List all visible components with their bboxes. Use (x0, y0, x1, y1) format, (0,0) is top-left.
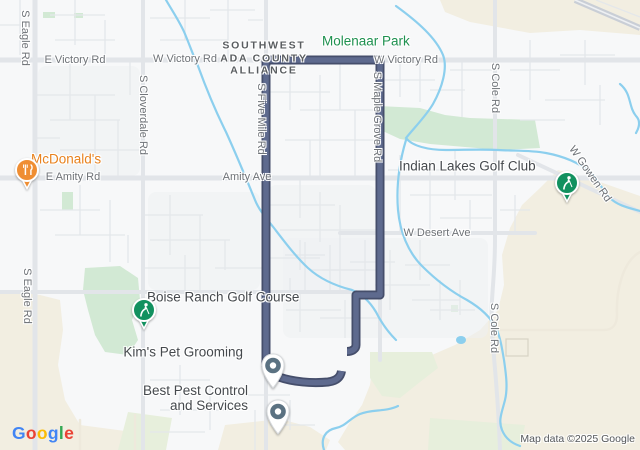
map-layers (0, 0, 640, 450)
road-label-amity-ave: Amity Ave (223, 171, 272, 183)
street-grid (270, 60, 377, 178)
poi-label-boise-ranch-golf-course[interactable]: Boise Ranch Golf Course (147, 290, 299, 305)
park-area (376, 106, 540, 150)
park-area (62, 192, 73, 210)
map-attribution: Map data ©2025 Google (520, 433, 635, 445)
road-label-s-maple-grove-rd: S Maple Grove Rd (371, 72, 383, 162)
golfer-icon (130, 297, 158, 331)
logo-letter: o (26, 423, 37, 443)
road-label-e-amity-rd: E Amity Rd (46, 171, 100, 183)
map-canvas[interactable]: E Victory Rd W Victory Rd W Victory Rd S… (0, 0, 640, 450)
road-label-s-eagle-rd-2: S Eagle Rd (21, 268, 33, 324)
residential-area (148, 192, 260, 290)
pond (456, 336, 466, 344)
road-label-e-victory-rd: E Victory Rd (45, 54, 106, 66)
alliance-line-1: SOUTHWEST (220, 39, 308, 52)
poi-label-indian-lakes-golf-club[interactable]: Indian Lakes Golf Club (399, 159, 536, 174)
poi-label-kims-pet-grooming[interactable]: Kim's Pet Grooming (123, 345, 243, 360)
best-pest-line-2: and Services (143, 398, 248, 413)
lot-outline (506, 339, 528, 356)
park-label-molenaar-park[interactable]: Molenaar Park (322, 34, 410, 49)
road-label-w-victory-rd: W Victory Rd (153, 53, 217, 65)
logo-letter: e (64, 423, 74, 443)
residential-area (283, 238, 488, 338)
alliance-line-3: ALLIANCE (220, 64, 308, 77)
logo-letter: o (37, 423, 48, 443)
best-pest-line-1: Best Pest Control (143, 383, 248, 398)
road-label-s-eagle-rd: S Eagle Rd (19, 10, 31, 66)
google-logo[interactable]: Google (12, 423, 74, 444)
road-label-w-victory-rd-2: W Victory Rd (374, 54, 438, 66)
road-label-s-cole-rd: S Cole Rd (489, 63, 501, 113)
area-label-southwest-ada-county-alliance: SOUTHWEST ADA COUNTY ALLIANCE (220, 39, 308, 77)
poi-label-best-pest-control[interactable]: Best Pest Control and Services (143, 383, 248, 413)
golfer-icon (553, 170, 581, 204)
place-pin-icon (263, 398, 293, 436)
poi-label-mcdonalds[interactable]: McDonald's (31, 152, 101, 167)
road-label-s-five-mile-rd: S Five Mile Rd (255, 83, 267, 155)
road-label-s-cloverdale-rd: S Cloverdale Rd (137, 75, 149, 155)
logo-letter: G (12, 423, 26, 443)
road-label-s-cole-rd-2: S Cole Rd (488, 303, 500, 353)
creek (620, 84, 639, 133)
fork-knife-icon (13, 157, 41, 191)
logo-letter: g (48, 423, 59, 443)
alliance-line-2: ADA COUNTY (220, 52, 308, 65)
place-pin-icon (258, 352, 288, 390)
road-label-w-desert-ave: W Desert Ave (403, 227, 470, 239)
